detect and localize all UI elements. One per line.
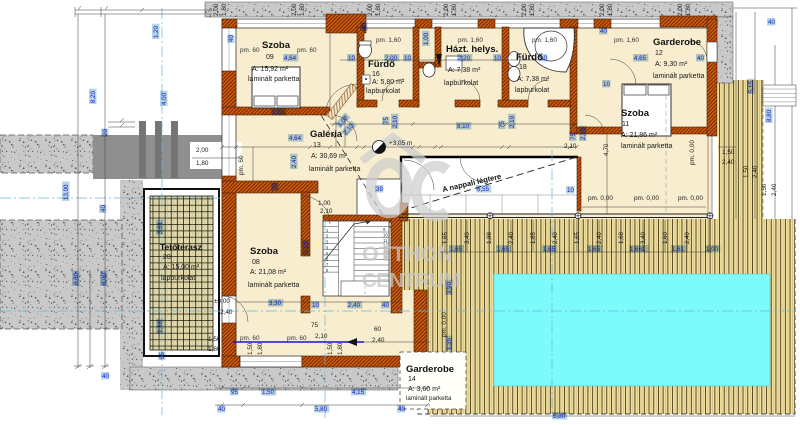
svg-text:1,65: 1,65 [574,232,581,244]
svg-text:40: 40 [228,35,235,42]
svg-text:A: 9,30 m²: A: 9,30 m² [655,61,688,68]
svg-text:13,00: 13,00 [63,184,70,200]
svg-text:1,68: 1,68 [618,232,625,244]
svg-text:1,80: 1,80 [375,3,382,16]
svg-text:1,38: 1,38 [157,320,164,333]
svg-text:2,00: 2,00 [599,3,606,16]
svg-text:6,55: 6,55 [477,186,490,193]
svg-text:CENTRUM: CENTRUM [362,269,460,292]
svg-text:1,65: 1,65 [588,246,601,253]
svg-text:4,65: 4,65 [634,55,647,62]
svg-text:Szoba: Szoba [621,108,650,119]
svg-text:1,65: 1,65 [530,232,537,244]
svg-text:A: 21,08 m²: A: 21,08 m² [250,269,287,276]
svg-text:40: 40 [361,23,368,30]
svg-text:1,80: 1,80 [451,3,458,16]
svg-text:pm. 1,60: pm. 1,60 [532,37,557,44]
svg-text:1,20: 1,20 [153,25,160,38]
svg-text:4,64: 4,64 [284,55,297,62]
svg-text:1,00: 1,00 [423,32,430,45]
svg-text:pm. 1,60: pm. 1,60 [376,37,401,44]
svg-text:2,00: 2,00 [443,3,450,16]
svg-text:40: 40 [600,28,607,35]
svg-text:75: 75 [570,133,577,140]
svg-text:4,15: 4,15 [352,389,365,396]
svg-text:2,10: 2,10 [315,333,328,340]
svg-text:2,10: 2,10 [320,208,333,215]
svg-text:lapburkolat: lapburkolat [515,87,549,94]
svg-text:pm. 60: pm. 60 [287,335,307,342]
svg-text:1,50: 1,50 [247,342,254,355]
svg-text:pm. 60: pm. 60 [238,155,245,175]
svg-text:10: 10 [603,81,610,88]
svg-text:2,40: 2,40 [291,155,298,168]
svg-text:laminált parketta: laminált parketta [248,76,299,83]
svg-text:A: 7,38 m²: A: 7,38 m² [448,67,481,74]
svg-text:2,00: 2,00 [521,3,528,16]
svg-text:40: 40 [768,19,775,26]
svg-text:laminált parketta: laminált parketta [248,282,299,289]
svg-text:2,40: 2,40 [596,232,603,244]
svg-text:40: 40 [697,55,704,62]
svg-text:A: 21,86 m²: A: 21,86 m² [621,132,658,139]
svg-text:10: 10 [540,55,547,62]
svg-text:40: 40 [398,406,405,413]
svg-text:3,40: 3,40 [640,232,647,244]
svg-text:40: 40 [100,205,107,212]
svg-text:5,80: 5,80 [553,413,566,420]
svg-text:2,40: 2,40 [752,165,759,178]
svg-text:1,80: 1,80 [337,342,344,355]
svg-text:18: 18 [519,64,527,71]
svg-text:1,88: 1,88 [486,232,493,244]
svg-text:60: 60 [374,326,382,333]
svg-text:pm. 0,00: pm. 0,00 [588,195,613,202]
svg-text:4,70: 4,70 [603,143,610,156]
svg-text:pm. 1,60: pm. 1,60 [458,37,483,44]
svg-text:8,10: 8,10 [457,123,470,130]
svg-text:1,80: 1,80 [685,3,692,16]
svg-text:6,80: 6,80 [73,272,80,285]
svg-text:A: 7,38 m²: A: 7,38 m² [517,76,550,83]
svg-text:2,40: 2,40 [372,337,385,344]
svg-text:2,40: 2,40 [722,159,735,166]
svg-text:1,65: 1,65 [450,246,463,253]
svg-text:pm. 60: pm. 60 [240,47,260,54]
svg-text:2,00: 2,00 [213,3,220,16]
svg-text:Tetőterasz: Tetőterasz [160,242,202,252]
svg-text:1,50: 1,50 [327,342,334,355]
svg-text:1,50: 1,50 [743,165,750,178]
svg-text:2,00: 2,00 [677,3,684,16]
svg-text:pm. 0,00: pm. 0,00 [678,195,703,202]
svg-text:Szoba: Szoba [250,246,279,257]
svg-text:75: 75 [383,117,390,124]
svg-text:1,65: 1,65 [497,246,510,253]
svg-text:1,50: 1,50 [722,149,735,156]
svg-text:+3,05 m: +3,05 m [389,140,412,147]
svg-text:10: 10 [404,55,411,62]
svg-text:Szoba: Szoba [262,40,291,51]
svg-text:2,10: 2,10 [509,115,516,128]
svg-text:1,65: 1,65 [543,246,556,253]
svg-text:A: 30,69 m²: A: 30,69 m² [311,153,348,160]
svg-text:2,40: 2,40 [220,309,233,316]
svg-text:8,80: 8,80 [766,109,773,122]
svg-text:1,80: 1,80 [221,3,228,16]
svg-text:2,10: 2,10 [392,115,399,128]
svg-text:20: 20 [102,129,109,136]
svg-text:2,00: 2,00 [196,147,209,154]
svg-text:Garderobe: Garderobe [653,37,701,48]
svg-text:1,35: 1,35 [446,337,453,350]
svg-text:09: 09 [266,54,274,61]
svg-text:3,40: 3,40 [464,232,471,244]
svg-text:Házt. helys.: Házt. helys. [446,44,498,55]
svg-text:1,60: 1,60 [662,232,669,244]
svg-text:laminált parketta: laminált parketta [309,166,360,173]
svg-text:16: 16 [372,71,380,78]
svg-text:75: 75 [311,322,319,329]
svg-text:A: 5,80 m²: A: 5,80 m² [372,79,405,86]
svg-text:pm. 0,00: pm. 0,00 [441,312,448,337]
svg-text:1,80: 1,80 [607,3,614,16]
svg-text:13: 13 [313,142,321,149]
svg-text:1,61: 1,61 [672,246,685,253]
svg-text:2,10: 2,10 [564,143,577,150]
svg-text:2,00: 2,00 [291,3,298,16]
svg-text:40: 40 [102,373,109,380]
svg-text:lapburkolat: lapburkolat [366,88,400,95]
svg-text:10: 10 [494,55,501,62]
svg-text:2,00: 2,00 [385,55,398,62]
svg-text:08: 08 [252,259,260,266]
svg-text:1,661: 1,661 [630,246,646,253]
svg-text:pm. 0,00: pm. 0,00 [689,140,696,165]
svg-text:A: 15,00 m²: A: 15,00 m² [163,264,200,271]
svg-text:pm. 1,60: pm. 1,60 [614,37,639,44]
svg-text:2,40: 2,40 [348,302,361,309]
svg-text:14: 14 [408,376,416,383]
svg-text:1,50: 1,50 [262,389,275,396]
svg-text:Garderobe: Garderobe [406,364,454,375]
svg-text:10: 10 [383,233,388,238]
svg-text:1,80: 1,80 [299,3,306,16]
svg-text:1,50: 1,50 [761,183,768,196]
svg-text:laminált parketta: laminált parketta [653,73,704,80]
svg-text:2,40: 2,40 [508,232,515,244]
svg-text:70: 70 [272,183,279,190]
svg-text:39: 39 [376,186,383,193]
svg-text:laminált parketta: laminált parketta [621,143,672,150]
svg-text:1,65: 1,65 [442,232,449,244]
svg-text:A: 15,92 m²: A: 15,92 m² [252,66,289,73]
svg-text:8,20: 8,20 [90,90,97,103]
svg-text:2,40: 2,40 [684,232,691,244]
svg-text:1,80: 1,80 [208,346,221,353]
svg-text:2,40: 2,40 [552,232,559,244]
svg-text:4,00: 4,00 [161,92,168,105]
svg-text:10: 10 [567,187,574,194]
svg-text:5,80: 5,80 [315,406,328,413]
svg-text:1,50: 1,50 [208,336,221,343]
svg-text:5,15: 5,15 [748,80,755,93]
svg-text:A: 3,60 m²: A: 3,60 m² [408,386,441,393]
svg-text:1,80: 1,80 [257,342,264,355]
svg-text:lapburkolat: lapburkolat [161,275,195,282]
svg-text:pm. 0,00: pm. 0,00 [634,195,659,202]
svg-text:2,10: 2,10 [580,127,587,140]
svg-text:3,30: 3,30 [269,300,282,307]
svg-text:2,20: 2,20 [458,55,471,62]
svg-text:3,90: 3,90 [446,281,453,294]
svg-text:95: 95 [159,352,166,359]
svg-text:OTTHON: OTTHON [362,242,453,266]
svg-text:laminált parketta: laminált parketta [406,395,452,402]
svg-text:95: 95 [231,389,238,396]
svg-text:2,40: 2,40 [771,183,778,196]
svg-text:lapburkolat: lapburkolat [444,80,478,87]
svg-text:±0,00: ±0,00 [214,298,230,305]
svg-text:10: 10 [348,55,355,62]
svg-text:5,10: 5,10 [303,241,310,254]
svg-text:1,00: 1,00 [706,246,719,253]
svg-text:Galéria: Galéria [310,129,343,140]
svg-text:3,61: 3,61 [157,221,164,234]
svg-text:4,64: 4,64 [289,135,302,142]
svg-text:75: 75 [499,121,506,128]
svg-text:40: 40 [218,406,225,413]
svg-text:20: 20 [163,254,171,261]
svg-text:12: 12 [655,50,663,57]
svg-text:3,60: 3,60 [272,109,285,116]
svg-text:10: 10 [312,302,319,309]
svg-text:pm. 60: pm. 60 [297,47,317,54]
svg-text:11: 11 [622,121,629,128]
svg-text:40: 40 [382,302,389,309]
svg-text:1,80: 1,80 [196,160,209,167]
svg-text:1,00: 1,00 [318,200,331,207]
svg-text:8,00: 8,00 [101,272,108,285]
svg-text:pm. 60: pm. 60 [240,335,260,342]
svg-text:2,00: 2,00 [367,3,374,16]
svg-text:1,80: 1,80 [529,3,536,16]
